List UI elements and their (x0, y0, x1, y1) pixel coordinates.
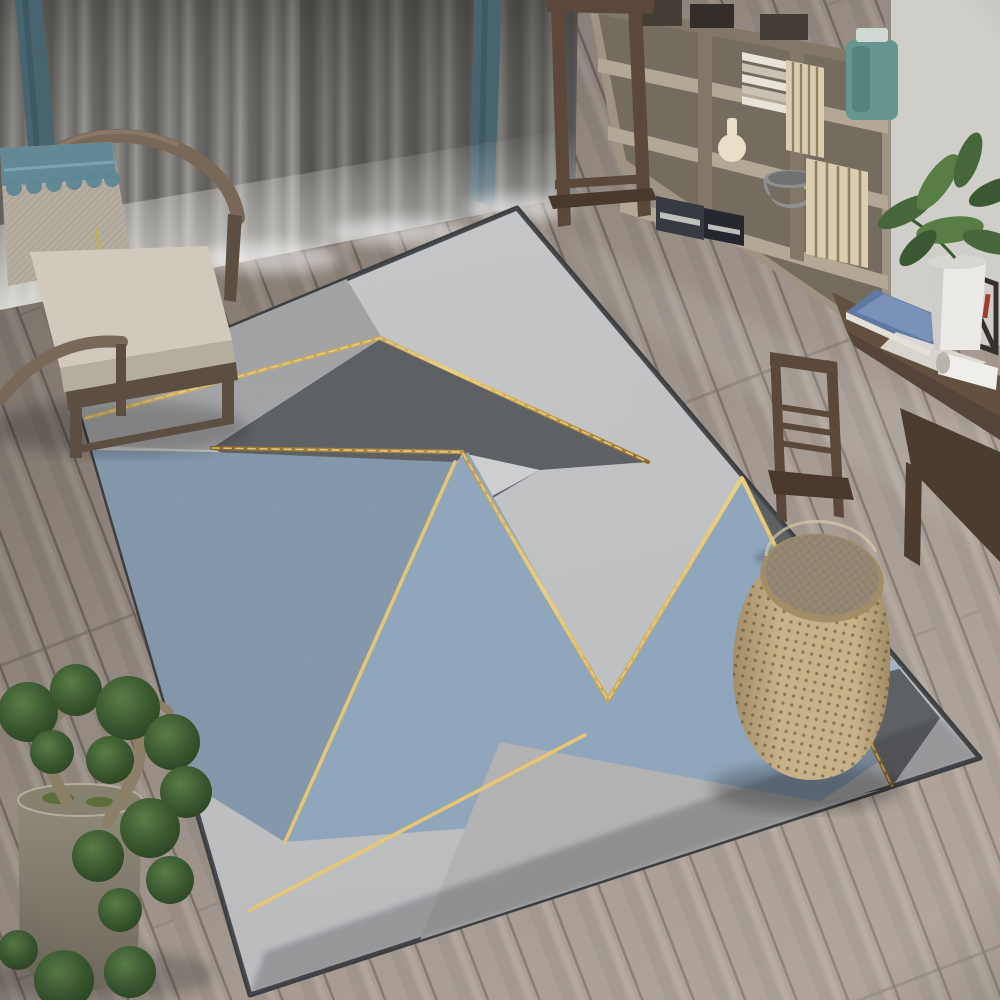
scene-canvas (0, 0, 1000, 1000)
vignette (0, 0, 1000, 1000)
room-photo (0, 0, 1000, 1000)
